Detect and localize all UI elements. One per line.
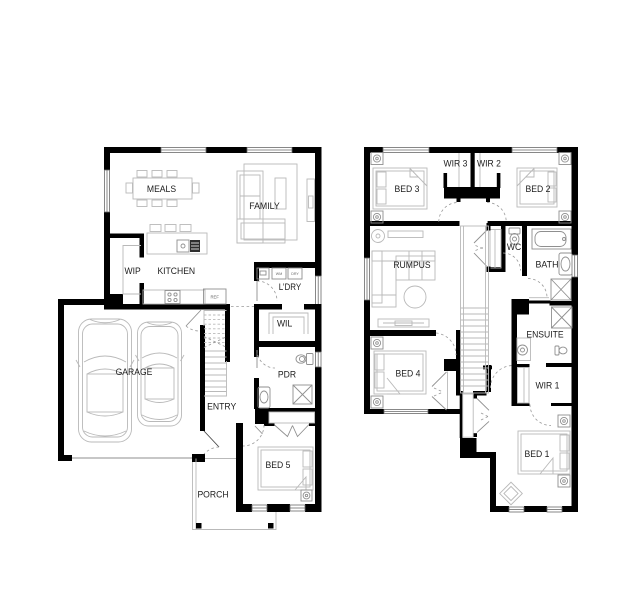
svg-text:PORCH: PORCH bbox=[197, 490, 228, 500]
svg-text:WC: WC bbox=[507, 242, 522, 252]
svg-text:BED 5: BED 5 bbox=[266, 460, 291, 470]
svg-text:WIR 3: WIR 3 bbox=[444, 158, 468, 168]
svg-text:BED 3: BED 3 bbox=[395, 184, 420, 194]
svg-text:WIR 2: WIR 2 bbox=[477, 158, 501, 168]
svg-text:WIR 1: WIR 1 bbox=[536, 381, 560, 391]
svg-text:BED 4: BED 4 bbox=[396, 369, 421, 379]
svg-text:RUMPUS: RUMPUS bbox=[393, 260, 430, 270]
svg-text:DRY: DRY bbox=[291, 272, 299, 276]
svg-text:L’DRY: L’DRY bbox=[279, 282, 302, 292]
svg-text:PDR: PDR bbox=[278, 370, 296, 380]
svg-text:KITCHEN: KITCHEN bbox=[157, 266, 195, 276]
svg-text:BATH: BATH bbox=[536, 260, 559, 270]
svg-text:BED 1: BED 1 bbox=[525, 449, 550, 459]
svg-text:BED 2: BED 2 bbox=[526, 184, 551, 194]
svg-text:WIL: WIL bbox=[277, 319, 292, 329]
svg-text:ENTRY: ENTRY bbox=[207, 402, 236, 412]
svg-text:MEALS: MEALS bbox=[147, 184, 176, 194]
svg-text:FAMILY: FAMILY bbox=[249, 201, 280, 211]
svg-text:WM: WM bbox=[276, 272, 282, 276]
svg-text:WIP: WIP bbox=[125, 266, 141, 276]
svg-text:ENSUITE: ENSUITE bbox=[526, 330, 563, 340]
svg-text:GARAGE: GARAGE bbox=[116, 367, 153, 377]
svg-text:REF: REF bbox=[211, 295, 220, 300]
